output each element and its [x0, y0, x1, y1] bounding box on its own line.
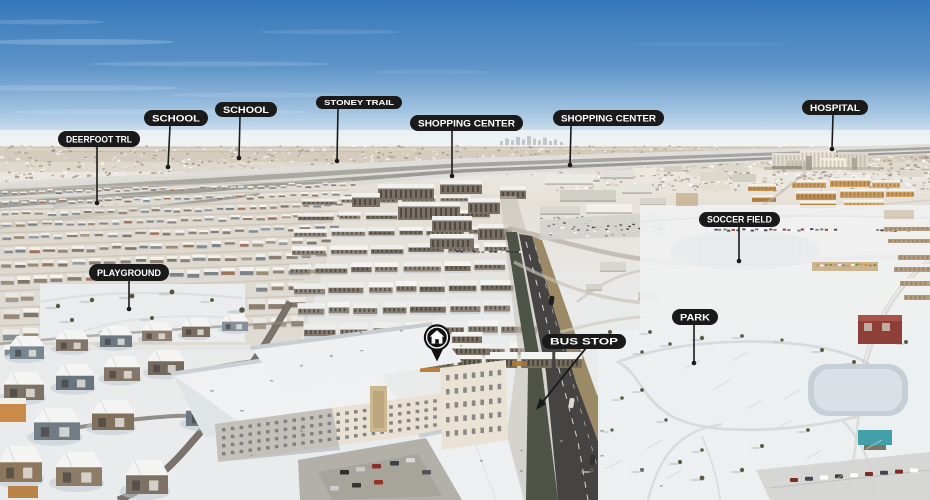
- svg-text:SOCCER FIELD: SOCCER FIELD: [707, 215, 772, 225]
- svg-text:SHOPPING CENTER: SHOPPING CENTER: [418, 118, 515, 129]
- svg-text:PARK: PARK: [680, 312, 710, 323]
- svg-text:PLAYGROUND: PLAYGROUND: [97, 268, 161, 279]
- svg-text:SHOPPING CENTER: SHOPPING CENTER: [561, 113, 656, 124]
- svg-text:DEERFOOT TRL: DEERFOOT TRL: [66, 134, 132, 145]
- svg-text:STONEY TRAIL: STONEY TRAIL: [324, 98, 395, 107]
- svg-text:SCHOOL: SCHOOL: [223, 105, 269, 116]
- svg-text:BUS STOP: BUS STOP: [550, 337, 618, 347]
- svg-text:SCHOOL: SCHOOL: [152, 113, 200, 124]
- svg-text:HOSPITAL: HOSPITAL: [810, 103, 860, 114]
